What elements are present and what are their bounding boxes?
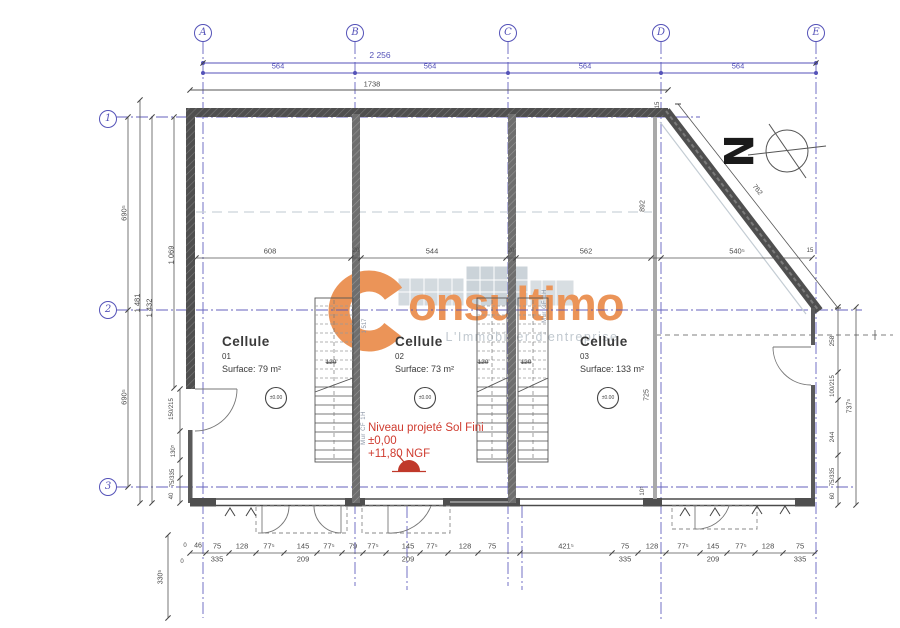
dim-mid: 15 [807, 248, 814, 254]
stair-dim: 1 517 [362, 318, 368, 333]
dim-left-bottom: 330⁵ [158, 570, 165, 585]
dim-bottom: 75 [488, 542, 496, 550]
cell-number: 03 [580, 352, 644, 361]
dim-mid: 544 [426, 247, 439, 255]
dim-left-total: 1 069 [167, 246, 175, 265]
north-arrow-letter: N [714, 134, 760, 167]
grid-col-a: A [199, 28, 206, 38]
stair-door-width: 120 [478, 360, 489, 367]
dim-bottom: 0 [183, 543, 186, 549]
dim-bottom-sub: 335 [794, 555, 807, 563]
dim-bottom-sub: 209 [297, 555, 310, 563]
dim-left-wall: 130⁵ [171, 445, 177, 458]
dim-top-seg: 564 [424, 62, 437, 70]
grid-col-e: E [812, 28, 819, 38]
dim-zero: 0 [180, 559, 183, 565]
dim-bottom-sub: 335 [211, 555, 224, 563]
dim-bottom: 145 [707, 542, 720, 550]
dim-right-total: 737⁵ [847, 399, 854, 414]
dim-bottom: 128 [236, 542, 249, 550]
dim-left-wall: 40 [169, 493, 175, 500]
dim-bottom: 128 [762, 542, 775, 550]
level-note: Niveau projeté Sol Fini ±0,00 +11,80 NGF [368, 422, 484, 461]
dim-left-wall: 75/335 [170, 469, 176, 487]
dim-cell3-inner: 725 [644, 389, 651, 401]
cell-01-label: Cellule 01 Surface: 79 m² [222, 334, 281, 374]
dim-bottom: 77⁵ [263, 542, 274, 550]
cell-surface: Surface: 133 m² [580, 364, 644, 374]
dim-bottom: 79 [349, 542, 357, 550]
dim-mid: 540⁵ [729, 247, 745, 255]
grid-axes [116, 42, 862, 620]
dim-left-seg: 690⁵ [120, 389, 128, 405]
dim-mid: 20 [508, 248, 515, 254]
dim-right-door: 100/215 [830, 375, 836, 397]
dim-bottom: 145 [297, 542, 310, 550]
dim-bottom: 77⁵ [367, 542, 378, 550]
grid-row-1: 1 [105, 114, 111, 124]
dim-small-15: 15 [655, 102, 661, 109]
dim-left-seg: 690⁵ [120, 205, 128, 221]
dim-bottom: 77⁵ [426, 542, 437, 550]
dim-top-seg: 564 [272, 62, 285, 70]
dim-left-door: 150/215 [169, 398, 175, 420]
level-marker-text: ±0.00 [419, 395, 431, 401]
floor-plan-canvas: onsultimo L'Immobilier d'entreprise [0, 0, 900, 628]
dim-bottom: 46 [194, 543, 202, 550]
dim-bottom: 75 [213, 542, 221, 550]
dim-bottom: 77⁵ [677, 542, 688, 550]
dim-bottom: 128 [646, 542, 659, 550]
dim-bottom-sub: 335 [619, 555, 632, 563]
dim-left-total: 1 432 [145, 299, 153, 318]
level-note-line2: ±0,00 [368, 435, 484, 448]
dim-right: 258 [830, 336, 837, 347]
vent-marks [225, 506, 790, 516]
cell-title: Cellule [222, 334, 281, 349]
grid-col-c: C [504, 28, 512, 38]
cell-surface: Surface: 79 m² [222, 364, 281, 374]
dim-mid: 20 [353, 248, 360, 254]
cell-02-label: Cellule 02 Surface: 73 m² [395, 334, 454, 374]
level-marker-text: ±0.00 [270, 395, 282, 401]
walls [186, 108, 819, 507]
dim-right: 60 [830, 493, 836, 500]
dim-bottom-sub: 209 [707, 555, 720, 563]
dim-mid: 562 [580, 247, 593, 255]
dim-right: 244 [830, 432, 837, 443]
dim-small-105: 10⁵ [640, 486, 646, 495]
cell-number: 02 [395, 352, 454, 361]
dim-bottom: 77⁵ [323, 542, 334, 550]
wall-fire-label: Mur CF 1H [542, 289, 548, 323]
dim-left-total: 1 481 [133, 294, 141, 313]
dim-bottom: 421⁵ [558, 542, 574, 550]
grid-col-b: B [351, 28, 358, 38]
stair-door-width: 120 [521, 360, 532, 367]
cell-03-label: Cellule 03 Surface: 133 m² [580, 334, 644, 374]
wall-fire-label: Mur CF 1H [361, 411, 367, 445]
dim-diagonal-v: 892 [640, 200, 647, 212]
cell-surface: Surface: 73 m² [395, 364, 454, 374]
dim-bottom: 145 [402, 542, 415, 550]
dim-bottom: 75 [621, 542, 629, 550]
top-dim-lines [203, 63, 816, 73]
dim-bottom: 77⁵ [735, 542, 746, 550]
cell-title: Cellule [580, 334, 644, 349]
dim-top-seg: 564 [579, 62, 592, 70]
plan-linework [0, 0, 900, 628]
dim-bottom-sub: 209 [402, 555, 415, 563]
stair-door-width: 120 [326, 360, 337, 367]
dim-top-inner: 1738 [364, 80, 381, 88]
grid-row-3: 3 [105, 482, 111, 492]
dim-top-total: 2 256 [369, 51, 390, 60]
grid-row-2: 2 [105, 305, 111, 315]
dim-right: 75/335 [830, 468, 836, 486]
dim-bottom: 75 [796, 542, 804, 550]
dim-bottom: 128 [459, 542, 472, 550]
level-marker-text: ±0.00 [602, 395, 614, 401]
cell-number: 01 [222, 352, 281, 361]
level-note-line1: Niveau projeté Sol Fini [368, 422, 484, 435]
cell-title: Cellule [395, 334, 454, 349]
grid-col-d: D [657, 28, 665, 38]
dim-top-seg: 564 [732, 62, 745, 70]
dim-mid: 608 [264, 247, 277, 255]
level-note-line3: +11,80 NGF [368, 448, 484, 461]
